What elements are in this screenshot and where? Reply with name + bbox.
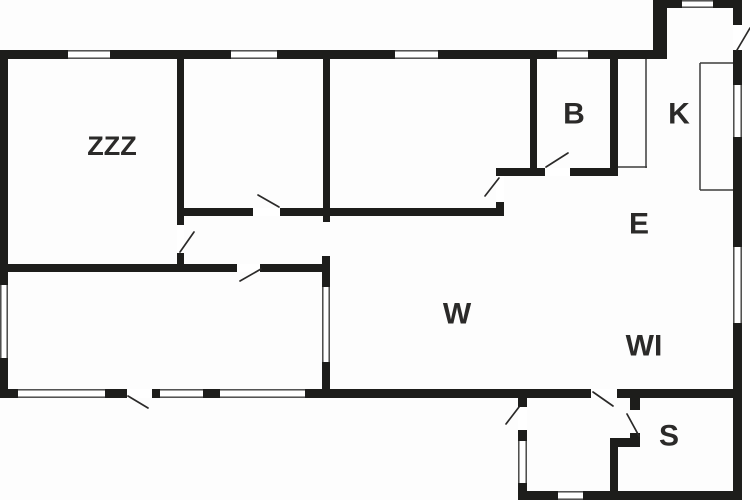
- hall-top-wall: [177, 208, 504, 216]
- bath-right-wall: [610, 50, 618, 176]
- bump-left-wall: [653, 0, 667, 59]
- room-label-wi: WI: [626, 330, 663, 363]
- bed2-door-gap: [253, 208, 280, 216]
- bath-left-wall: [530, 50, 537, 168]
- annex-bottom-wall: [518, 491, 742, 500]
- room-label-e: E: [629, 208, 649, 241]
- floor-plan-drawing: ZZZBKEWWIS: [0, 0, 750, 500]
- room-label-w: W: [443, 298, 472, 331]
- bed2-right-wall: [323, 50, 330, 222]
- room-label-s: S: [659, 420, 679, 453]
- annex-entry-door-gap: [518, 407, 527, 430]
- main-entry-door-gap: [127, 389, 152, 398]
- entry-door-gap: [733, 25, 742, 50]
- bath-door-gap: [545, 168, 570, 176]
- floor-plan: ZZZBKEWWIS: [0, 0, 750, 500]
- bed1-right-wall: [177, 50, 184, 225]
- room-label-zzz: ZZZ: [87, 131, 136, 161]
- bed3-top-wall: [0, 264, 330, 272]
- s-left-wall-lower: [610, 438, 618, 500]
- room-label-b: B: [563, 98, 585, 131]
- room-label-k: K: [668, 98, 690, 131]
